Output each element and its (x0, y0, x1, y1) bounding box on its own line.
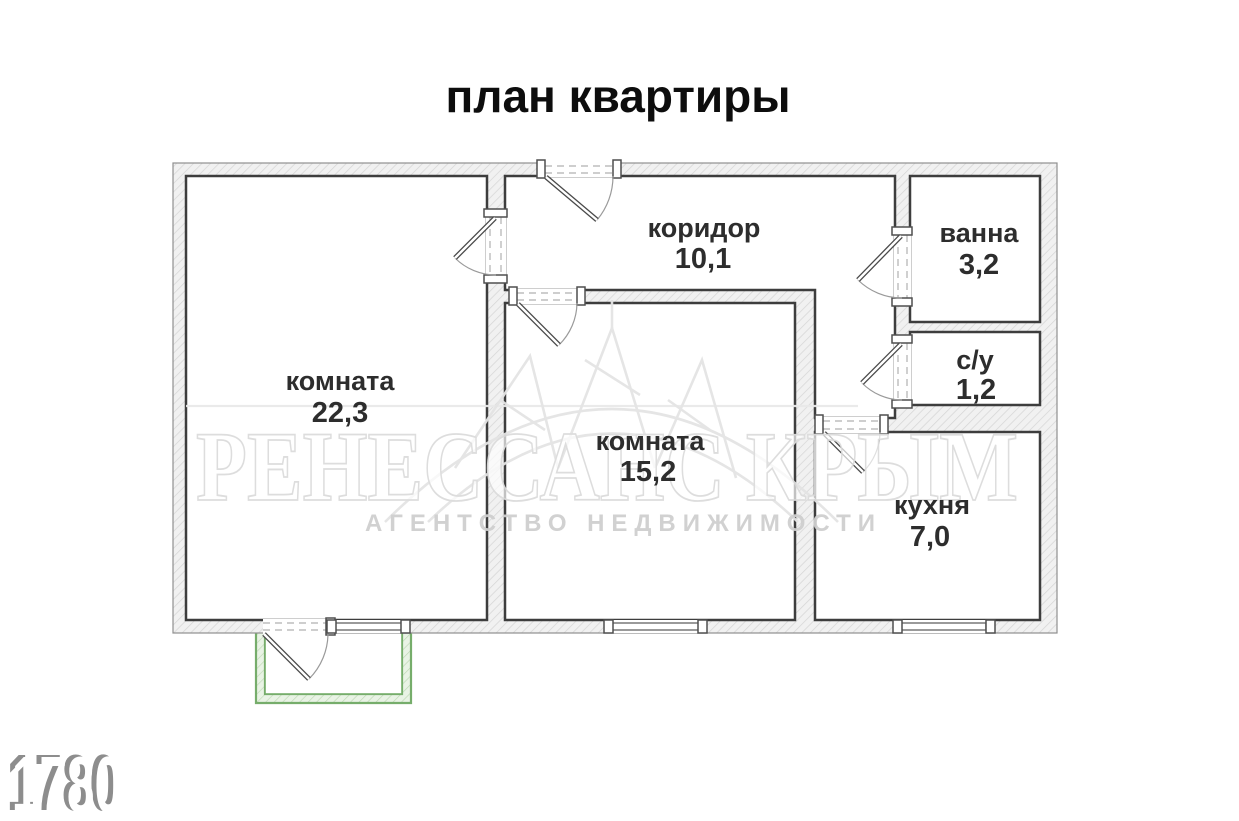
room-wc: с/у 1,2 (956, 345, 996, 406)
room-kitchen-area: 7,0 (910, 521, 950, 553)
room-wc-label: с/у (956, 345, 994, 375)
floor-plan-page: план квартиры (0, 0, 1239, 821)
bedroom-window-symbol (604, 620, 707, 633)
room-living-label: комната (286, 366, 396, 396)
room-corridor-area: 10,1 (675, 243, 731, 275)
page-title: план квартиры (445, 70, 790, 122)
listing-number-text: 1780 (12, 741, 122, 821)
room-bath-area: 3,2 (959, 249, 999, 281)
building-walls (173, 163, 1057, 633)
watermark-tagline-text: АГЕНТСТВО НЕДВИЖИМОСТИ (365, 510, 875, 537)
kitchen-window-symbol (893, 620, 995, 633)
listing-number: 1780 1780 (7, 739, 122, 821)
room-corridor-label: коридор (648, 213, 761, 243)
room-kitchen-label: кухня (894, 490, 970, 520)
floor-plan: план квартиры (0, 0, 1239, 821)
room-bedroom-area: 15,2 (620, 456, 676, 488)
room-living-area: 22,3 (312, 397, 368, 429)
room-wc-area: 1,2 (956, 374, 996, 406)
living-room-window-symbol (327, 620, 410, 633)
room-bath-label: ванна (940, 218, 1020, 248)
room-bedroom-label: комната (596, 426, 706, 456)
